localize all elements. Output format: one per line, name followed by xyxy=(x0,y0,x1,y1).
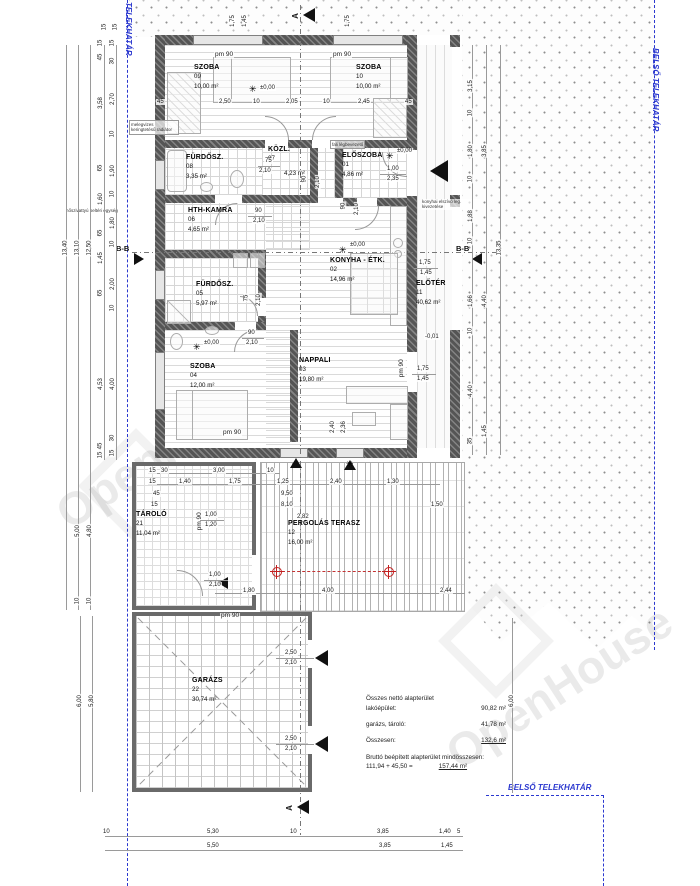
room-label-konyha: KONYHA - ÉTK. 02 14,96 m² xyxy=(330,257,385,285)
wall-outer-right xyxy=(407,35,417,150)
dim: 1,45 xyxy=(416,376,430,382)
room-number: 04 xyxy=(190,371,216,381)
section-label-a-top: A xyxy=(292,12,300,20)
room-name: GARÁZS xyxy=(192,677,223,685)
door-size: 2,10 xyxy=(315,175,321,189)
summary-gross-value: 157,44 m² xyxy=(439,763,467,770)
room-area: 4,86 m² xyxy=(342,170,383,180)
dim-line xyxy=(380,174,406,175)
boundary-line-bottom-right xyxy=(603,795,604,886)
dim: 10 xyxy=(252,99,261,105)
dim: 1,90 xyxy=(110,164,116,178)
dim-line xyxy=(414,268,438,269)
level-marker-icon: ✳ xyxy=(339,246,347,255)
room-name: FÜRDŐSZ. xyxy=(196,281,233,289)
dim: 2,00 xyxy=(110,277,116,291)
room-area: 14,96 m² xyxy=(330,275,385,285)
wall-int xyxy=(165,195,215,203)
dim: 15 xyxy=(148,479,157,485)
dim: 3,58 xyxy=(98,96,104,110)
garage-arrow xyxy=(315,650,328,666)
window xyxy=(193,35,263,45)
level-value: ±0,00 xyxy=(349,242,366,248)
dim: 45 xyxy=(404,99,413,105)
dim: 15 xyxy=(109,39,115,48)
bed xyxy=(213,57,291,103)
dim: 30 xyxy=(109,57,115,66)
room-area: 4,65 m² xyxy=(188,225,233,235)
door-size: 1,00 xyxy=(204,512,218,518)
dim: 10 xyxy=(467,327,473,336)
dim: 45 xyxy=(152,491,161,497)
level-value: ±0,00 xyxy=(396,148,413,154)
dim: 45 xyxy=(97,442,103,451)
wall-int xyxy=(165,140,265,148)
garazs-door-gap xyxy=(308,640,312,668)
wall-int xyxy=(290,330,298,442)
section-marker-bb-right xyxy=(472,253,482,265)
dim: 3,15 xyxy=(468,79,474,93)
dim: 2,82 xyxy=(296,514,310,520)
room-name: SZOBA xyxy=(356,64,382,72)
dim-line xyxy=(486,45,487,455)
door-size: 2,10 xyxy=(252,218,266,224)
lintel-label: pm 90 xyxy=(222,430,242,437)
dim: 15 xyxy=(109,449,115,458)
level-value: ±0,00 xyxy=(203,340,220,346)
dim: 1,80 xyxy=(242,588,256,594)
dim: 10 xyxy=(109,190,115,199)
summary-row-value: 41,78 m² xyxy=(481,721,506,728)
dim: 3,00 xyxy=(212,468,226,474)
dim: 4,40 xyxy=(482,294,488,308)
dim: 10 xyxy=(102,829,111,835)
room-area: 12,00 m² xyxy=(190,381,216,391)
room-name: TÁROLÓ xyxy=(136,511,167,519)
dim: 10 xyxy=(467,109,473,118)
dim: 30 xyxy=(160,468,169,474)
dim-line xyxy=(204,580,228,581)
dim: 15 xyxy=(148,468,157,474)
room-area: 10,00 m² xyxy=(356,82,382,92)
toilet xyxy=(230,170,244,188)
dim: 1,75 xyxy=(230,14,236,28)
section-line-a xyxy=(300,5,301,835)
boundary-line-left xyxy=(127,0,128,886)
dim: 2,45 xyxy=(357,99,371,105)
dim: 3,85 xyxy=(376,829,390,835)
sofa xyxy=(346,386,408,404)
toilet xyxy=(170,333,183,350)
dim: 45 xyxy=(97,53,103,62)
dim: 2,44 xyxy=(439,588,453,594)
dim: 15 xyxy=(101,23,107,32)
dim: 10 xyxy=(86,597,92,606)
wall-int xyxy=(377,198,407,206)
kitchen-sink xyxy=(393,238,403,248)
window xyxy=(155,270,165,300)
lintel-label: pm 90 xyxy=(332,52,352,59)
dim: 3,85 xyxy=(482,144,488,158)
dim-line xyxy=(116,45,117,460)
dim: 4,00 xyxy=(321,588,335,594)
dim-total: 13,35 xyxy=(497,239,503,256)
annotation-airin: fali légbevezető xyxy=(330,140,365,149)
dim: 5,50 xyxy=(206,843,220,849)
dim: 15 xyxy=(97,451,103,460)
room-name: FÜRDŐSZ. xyxy=(186,154,223,162)
door-size: 75 xyxy=(243,294,249,303)
dim: 65 xyxy=(97,164,103,173)
dim: 10 xyxy=(266,468,275,474)
dim: 10 xyxy=(289,829,298,835)
room-label-eloter: ELŐTÉR 11 40,62 m² xyxy=(416,280,446,308)
porch-size: 1,75 xyxy=(418,260,432,266)
room-label-kamra: HTH-KAMRA 06 4,65 m² xyxy=(188,207,233,235)
dim-total: 13,10 xyxy=(75,239,81,256)
door-size: 90 xyxy=(340,202,346,211)
summary-row-label: lakóépület: xyxy=(366,705,396,712)
window xyxy=(155,160,165,190)
door-size: 75 xyxy=(264,158,273,164)
dim-line xyxy=(105,850,463,851)
lintel-label: pm 90 xyxy=(399,358,406,378)
summary-gross-expr: 111,94 + 45,50 = xyxy=(366,763,413,770)
room-number: 09 xyxy=(194,72,220,82)
wall-outer-right xyxy=(407,196,417,352)
window-terrace-door xyxy=(280,448,308,458)
lintel-label: pm 90 xyxy=(197,511,204,531)
room-label-szoba09: SZOBA 09 10,00 m² xyxy=(194,64,220,92)
room-label-eloszoba: ELŐSZOBA 01 4,86 m² xyxy=(342,152,383,180)
floor-porch xyxy=(417,45,452,448)
dim-line xyxy=(258,166,280,167)
door-size: 90 xyxy=(254,208,263,214)
room-name: KÖZL. xyxy=(268,146,290,154)
bed-pillow-line xyxy=(390,57,391,103)
summary-row-label: Összesen: xyxy=(366,737,396,744)
section-marker-bb-left xyxy=(134,253,144,265)
dim: 1,45 xyxy=(242,14,248,28)
dim: 10 xyxy=(467,175,473,184)
lintel-label: pm 90 xyxy=(220,613,240,620)
door-size: 2,10 xyxy=(354,202,360,216)
wall-porch-L xyxy=(450,330,460,458)
room-area: 3,35 m² xyxy=(186,172,223,182)
dim: 1,45 xyxy=(98,251,104,265)
level-marker-icon: ✳ xyxy=(346,460,354,469)
dim: 10 xyxy=(74,597,80,606)
dim: 5 xyxy=(456,829,461,835)
level-marker-icon: ✳ xyxy=(193,343,201,352)
room-number: 01 xyxy=(342,160,383,170)
porch-column xyxy=(450,35,460,47)
dim: 2,05 xyxy=(285,99,299,105)
dim: 1,60 xyxy=(98,192,104,206)
floor-plan-canvas: OpenHouse OpenHouse TELEKHATÁR BELSŐ TEL… xyxy=(0,0,700,886)
room-area: 19,80 m² xyxy=(299,375,331,385)
room-area: 16,00 m² xyxy=(288,538,360,548)
dim: 15 xyxy=(112,23,118,32)
dim: 1,80 xyxy=(468,144,474,158)
dim-line xyxy=(242,338,264,339)
room-name: SZOBA xyxy=(190,363,216,371)
door-size: 2,10 xyxy=(245,340,259,346)
room-area: 11,04 m² xyxy=(136,529,167,539)
room-label-szoba04: SZOBA 04 12,00 m² xyxy=(190,363,216,391)
bed-pillow-line xyxy=(192,390,193,440)
room-label-garazs: GARÁZS 22 30,74 m² xyxy=(192,677,223,705)
dim: 8,10 xyxy=(280,502,294,508)
section-label-a-bottom: A xyxy=(286,804,294,812)
summary-row-value: 90,82 m² xyxy=(481,705,506,712)
room-label-terasz: PERGOLÁS TERASZ 12 16,00 m² xyxy=(288,520,360,548)
garage-door-size: 2,50 xyxy=(284,736,298,742)
section-marker-a-bottom xyxy=(297,800,309,814)
dim: 5,80 xyxy=(89,694,95,708)
dim: 9,50 xyxy=(280,491,294,497)
section-marker-a-top xyxy=(303,8,315,22)
sink xyxy=(200,182,213,192)
window-terrace-door xyxy=(336,448,364,458)
room-name: SZOBA xyxy=(194,64,220,72)
dim: 10 xyxy=(109,240,115,249)
boundary-label-left: TELEKHATÁR xyxy=(124,2,133,56)
room-number: 11 xyxy=(416,288,446,298)
room-number: 12 xyxy=(288,528,360,538)
lintel-label: pm 90 xyxy=(214,52,234,59)
bathtub xyxy=(167,150,187,192)
room-label-furdo05: FÜRDŐSZ. 05 5,97 m² xyxy=(196,281,233,309)
door-size: 90 xyxy=(247,330,256,336)
sink xyxy=(205,326,219,335)
door-size: 90 xyxy=(301,175,307,184)
boundary-label-right: BELSŐ TELEKHATÁR xyxy=(651,48,660,131)
dim: 1,40 xyxy=(438,829,452,835)
level-marker-icon: ✳ xyxy=(249,85,257,94)
door-size: 1,00 xyxy=(208,572,222,578)
terrace-arrow xyxy=(290,458,302,468)
room-name: NAPPALI xyxy=(299,357,331,365)
section-line-b xyxy=(132,252,500,253)
dim-line xyxy=(276,744,314,745)
window xyxy=(333,35,403,45)
door-size: 2,10 xyxy=(258,168,272,174)
room-name: ELŐTÉR xyxy=(416,280,446,288)
pergola-post xyxy=(272,567,282,577)
wall-outer-right xyxy=(407,392,417,458)
summary-title: Összes nettó alapterület xyxy=(366,695,544,702)
summary-row-label: garázs, tároló: xyxy=(366,721,406,728)
shower xyxy=(167,300,191,324)
room-number: 05 xyxy=(196,289,233,299)
room-label-furdo08: FÜRDŐSZ. 08 3,35 m² xyxy=(186,154,223,182)
summary-gross-title: Bruttó beépített alapterület mindösszese… xyxy=(366,754,544,761)
level-marker-icon: ✳ xyxy=(386,152,394,161)
wall-int xyxy=(242,195,315,203)
room-name: ELŐSZOBA xyxy=(342,152,383,160)
dim: 65 xyxy=(97,229,103,238)
sofa xyxy=(390,404,408,440)
room-number: 10 xyxy=(356,72,382,82)
dim: 1,75 xyxy=(228,479,242,485)
garage-arrow xyxy=(315,736,328,752)
dim: 4,40 xyxy=(468,384,474,398)
wardrobe xyxy=(373,98,407,138)
garage-door-size: 2,10 xyxy=(284,746,298,752)
dim: 2,50 xyxy=(218,99,232,105)
room-number: 08 xyxy=(186,162,223,172)
section-label-bb-left: B-B xyxy=(116,243,129,255)
dim: 4,80 xyxy=(87,524,93,538)
room-number: 06 xyxy=(188,215,233,225)
dim-total: 13,40 xyxy=(63,239,69,256)
room-name: KONYHA - ÉTK. xyxy=(330,257,385,265)
room-number: 22 xyxy=(192,685,223,695)
dim: 30 xyxy=(109,434,115,443)
room-number: 02 xyxy=(330,265,385,275)
room-area: 30,74 m² xyxy=(192,695,223,705)
summary-row-value: 132,6 m² xyxy=(481,737,506,744)
dim: 5,00 xyxy=(75,524,81,538)
dim: 3,85 xyxy=(378,843,392,849)
dim: 5,30 xyxy=(206,829,220,835)
dim: 10 xyxy=(109,130,115,139)
dim-line xyxy=(104,45,105,460)
dim: 15 xyxy=(150,502,159,508)
dim: 10 xyxy=(322,99,331,105)
dim: 1,75 xyxy=(345,14,351,28)
door-size: 2,40 xyxy=(330,420,336,434)
wall-int xyxy=(256,322,266,330)
washer xyxy=(233,253,248,268)
porch-size: 1,45 xyxy=(419,270,433,276)
room-name: HTH-KAMRA xyxy=(188,207,233,215)
dim: 1,45 xyxy=(440,843,454,849)
door-size: 2,10 xyxy=(256,293,262,307)
door-size: 2,36 xyxy=(341,420,347,434)
dim-line xyxy=(105,836,463,837)
room-area: 40,62 m² xyxy=(416,298,446,308)
dim: 1,66 xyxy=(468,294,474,308)
dim: 4,00 xyxy=(110,377,116,391)
annotation-heatpump: hőszivattyú beltéri egység xyxy=(66,208,118,213)
room-number: 21 xyxy=(136,519,167,529)
dim: 1,40 xyxy=(178,479,192,485)
room-area: 5,97 m² xyxy=(196,299,233,309)
dim: 1,45 xyxy=(482,424,488,438)
door-size: 1,00 xyxy=(386,166,400,172)
entrance-arrow xyxy=(430,160,448,182)
dim: 4,53 xyxy=(98,377,104,391)
room-name: PERGOLÁS TERASZ xyxy=(288,520,360,528)
dim: 1,88 xyxy=(468,209,474,223)
dim-total: 12,50 xyxy=(87,239,93,256)
room-label-nappali: NAPPALI 03 19,80 m² xyxy=(299,357,331,385)
dim-line xyxy=(200,520,224,521)
door-size: 2,10 xyxy=(208,582,222,588)
area-summary: Összes nettó alapterület lakóépület: 90,… xyxy=(366,695,544,770)
dim-line xyxy=(248,216,272,217)
boundary-line-bottom xyxy=(486,795,604,796)
room-label-szoba10: SZOBA 10 10,00 m² xyxy=(356,64,382,92)
dim: 35 xyxy=(467,437,473,446)
pergola-post xyxy=(384,567,394,577)
dim: 1,25 xyxy=(276,479,290,485)
dryer xyxy=(250,253,265,268)
room-area: 10,00 m² xyxy=(194,82,220,92)
dim: 1,75 xyxy=(416,366,430,372)
dim: 2,40 xyxy=(329,479,343,485)
grass-pattern-right xyxy=(462,0,655,655)
dim: 10 xyxy=(109,304,115,313)
dim: 1,50 xyxy=(430,502,444,508)
dim: 1,30 xyxy=(386,479,400,485)
door-size: 2,35 xyxy=(386,176,400,182)
dim: 15 xyxy=(97,39,103,48)
garage-door-size: 2,50 xyxy=(284,650,298,656)
level-value: ±0,00 xyxy=(259,85,276,91)
bed-pillow-line xyxy=(231,57,232,103)
room-label-tarolo: TÁROLÓ 21 11,04 m² xyxy=(136,511,167,539)
window xyxy=(155,352,165,410)
dim: 10 xyxy=(467,237,473,246)
garage-door-size: 2,10 xyxy=(284,660,298,666)
dim: 2,70 xyxy=(110,92,116,106)
boundary-label-bottom: BELSŐ TELEKHATÁR xyxy=(508,783,591,792)
annotation-radiator: melegvizes keringtetésű radiátor xyxy=(129,120,179,135)
dim-line xyxy=(412,374,436,375)
dim: 65 xyxy=(97,289,103,298)
dim-line xyxy=(66,45,67,610)
room-number: 03 xyxy=(299,365,331,375)
dim-line xyxy=(276,658,314,659)
pergola-beam-line xyxy=(282,571,386,572)
dim: 1,80 xyxy=(110,216,116,230)
level-value: -0,01 xyxy=(424,334,440,340)
garazs-door-gap xyxy=(308,726,312,754)
dim: 6,00 xyxy=(77,694,83,708)
coffee-table xyxy=(352,412,376,426)
dim: 45 xyxy=(156,99,165,105)
door-size: 1,20 xyxy=(204,522,218,528)
